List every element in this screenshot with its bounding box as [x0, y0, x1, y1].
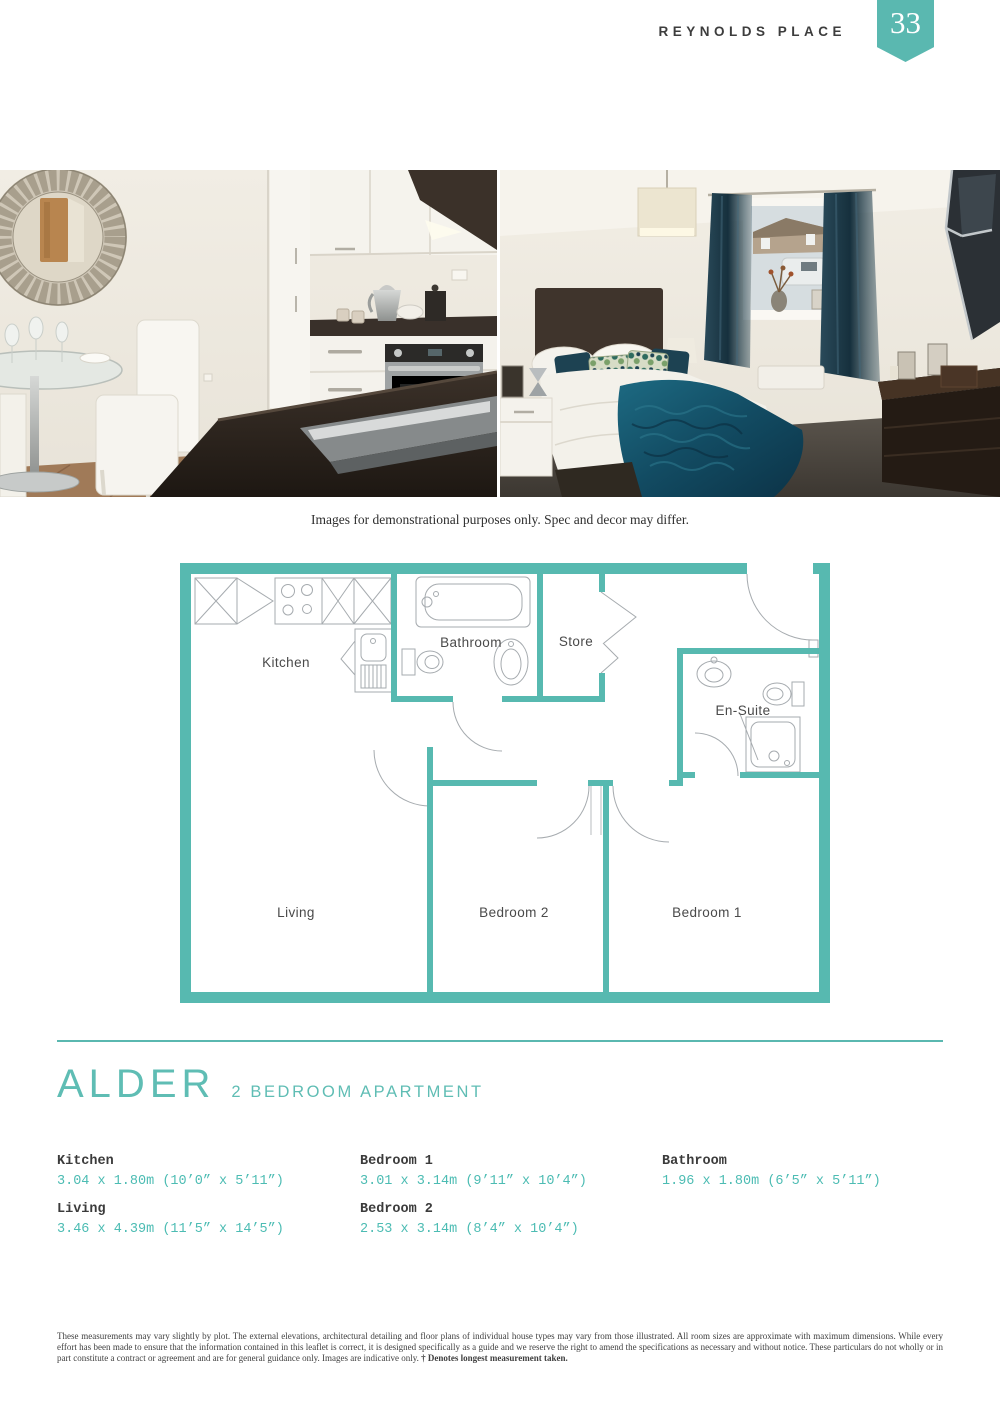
room-size: 3.01 x 3.14m (9’11” x 10’4”): [360, 1172, 660, 1192]
dimensions-column-1: Kitchen 3.04 x 1.80m (10’0” x 5’11”) Liv…: [57, 1152, 357, 1248]
wooden-box: [941, 366, 977, 387]
room-size: 2.53 x 3.14m (8’4” x 10’4”): [360, 1220, 660, 1240]
room-label-kitchen: Kitchen: [262, 655, 310, 670]
dimension-kitchen: Kitchen 3.04 x 1.80m (10’0” x 5’11”): [57, 1152, 357, 1192]
room-size: 3.04 x 1.80m (10’0” x 5’11”): [57, 1172, 357, 1192]
page-number-badge: 33: [877, 0, 934, 62]
dimension-bedroom1: Bedroom 1 3.01 x 3.14m (9’11” x 10’4”): [360, 1152, 660, 1192]
photo-caption: Images for demonstrational purposes only…: [0, 512, 1000, 528]
floor-plan-drawing: Kitchen Bathroom Store En-Suite Living B…: [180, 563, 830, 1003]
brochure-page: REYNOLDS PLACE 33: [0, 0, 1000, 1414]
cafetiere: [425, 291, 446, 321]
plot-subtitle: 2 BEDROOM APARTMENT: [231, 1083, 483, 1102]
kitchen-photo: [0, 170, 497, 497]
room-label-bathroom: Bathroom: [440, 635, 502, 650]
floor-plan: Kitchen Bathroom Store En-Suite Living B…: [180, 563, 830, 1003]
disclaimer-note: † Denotes longest measurement taken.: [421, 1353, 568, 1363]
walls: [180, 563, 830, 1003]
room-size: 1.96 x 1.80m (6’5” x 5’11”): [662, 1172, 962, 1192]
radiator: [758, 366, 824, 389]
socket: [204, 374, 212, 381]
dimension-bathroom: Bathroom 1.96 x 1.80m (6’5” x 5’11”): [662, 1152, 962, 1192]
room-size: 3.46 x 4.39m (11’5” x 14’5”): [57, 1220, 357, 1240]
mug: [337, 309, 349, 321]
dimensions-column-2: Bedroom 1 3.01 x 3.14m (9’11” x 10’4”) B…: [360, 1152, 660, 1248]
room-label-bedroom1: Bedroom 1: [672, 905, 742, 920]
photo-strip: [0, 170, 1000, 497]
plot-name: ALDER: [57, 1062, 215, 1107]
dimension-bedroom2: Bedroom 2 2.53 x 3.14m (8’4” x 10’4”): [360, 1200, 660, 1240]
bedroom-photo-illustration: [500, 170, 1000, 497]
photo-frame: [898, 352, 915, 379]
room-name: Living: [57, 1200, 357, 1220]
photo-frame: [502, 366, 523, 397]
dimension-living: Living 3.46 x 4.39m (11’5” x 14’5”): [57, 1200, 357, 1240]
disclaimer: These measurements may vary slightly by …: [57, 1331, 943, 1364]
room-label-bedroom2: Bedroom 2: [479, 905, 549, 920]
plot-title: ALDER 2 BEDROOM APARTMENT: [57, 1062, 484, 1107]
development-name: REYNOLDS PLACE: [658, 24, 846, 39]
candle: [890, 366, 898, 379]
mug: [352, 311, 364, 323]
room-name: Kitchen: [57, 1152, 357, 1172]
room-label-living: Living: [277, 905, 315, 920]
kitchen-photo-illustration: [0, 170, 497, 497]
room-name: Bedroom 2: [360, 1200, 660, 1220]
dimensions-column-3: Bathroom 1.96 x 1.80m (6’5” x 5’11”): [662, 1152, 962, 1200]
divider-line: [57, 1040, 943, 1042]
vase: [771, 290, 787, 312]
bedroom-photo: [500, 170, 1000, 497]
room-name: Bathroom: [662, 1152, 962, 1172]
room-label-ensuite: En-Suite: [716, 703, 771, 718]
room-label-store: Store: [559, 634, 593, 649]
page-number: 33: [890, 5, 921, 40]
room-name: Bedroom 1: [360, 1152, 660, 1172]
